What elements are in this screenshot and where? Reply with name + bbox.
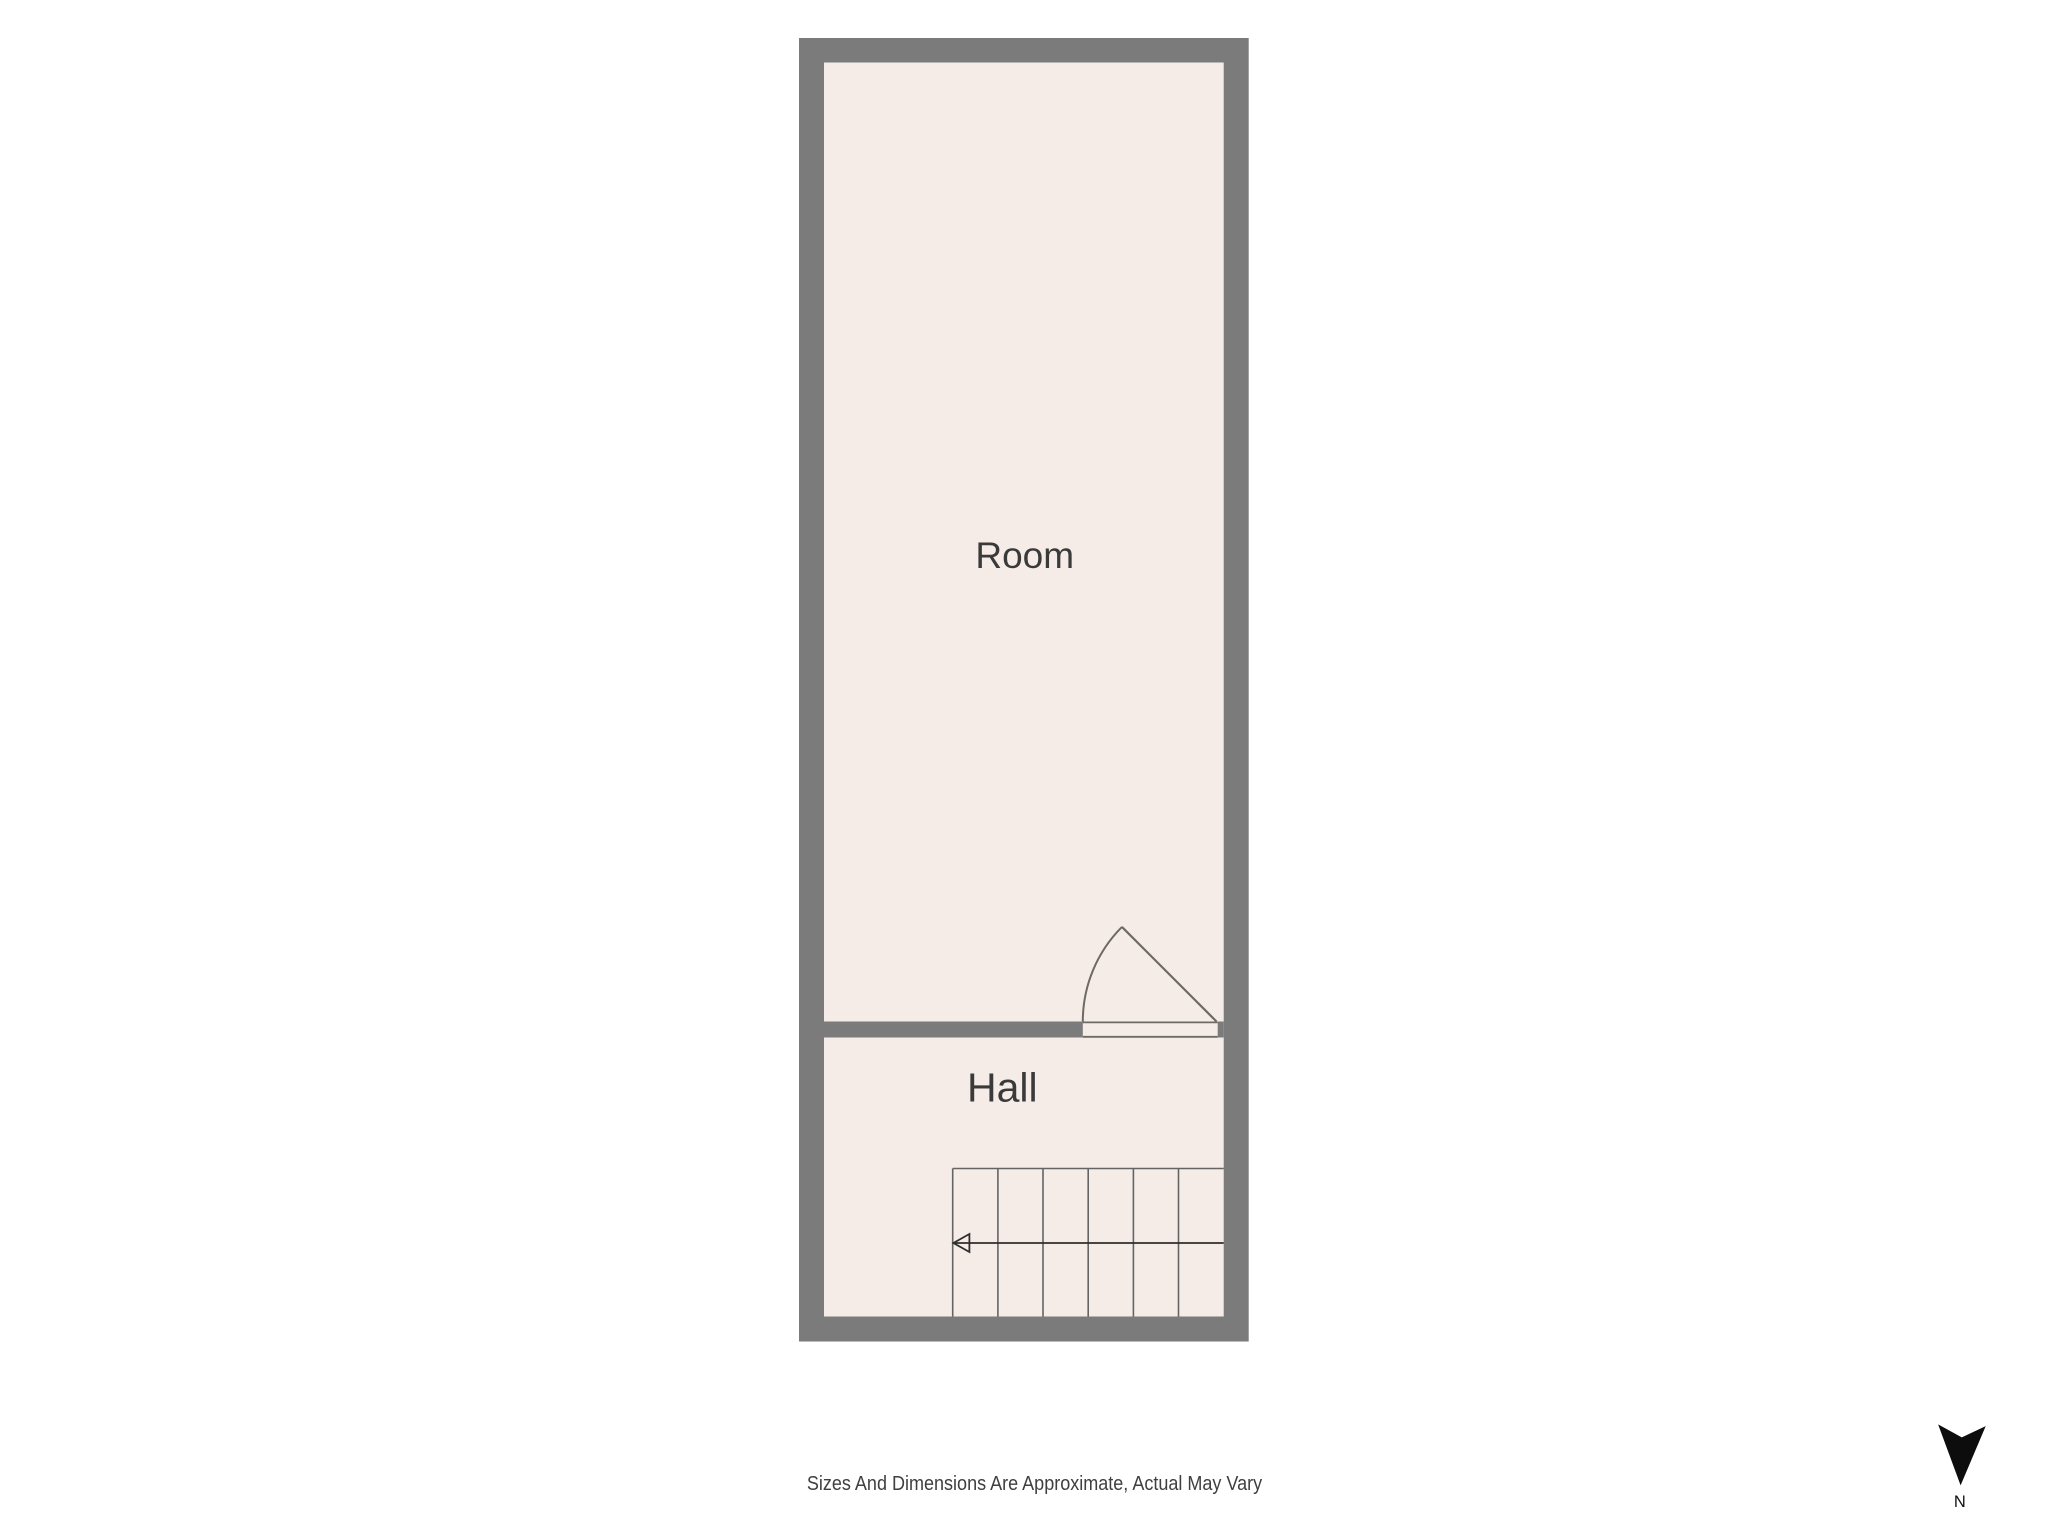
svg-text:Hall: Hall [967, 1064, 1038, 1110]
svg-text:Room: Room [975, 535, 1074, 576]
svg-text:N: N [1954, 1493, 1966, 1511]
svg-text:Sizes And Dimensions Are Appro: Sizes And Dimensions Are Approximate, Ac… [807, 1473, 1262, 1495]
